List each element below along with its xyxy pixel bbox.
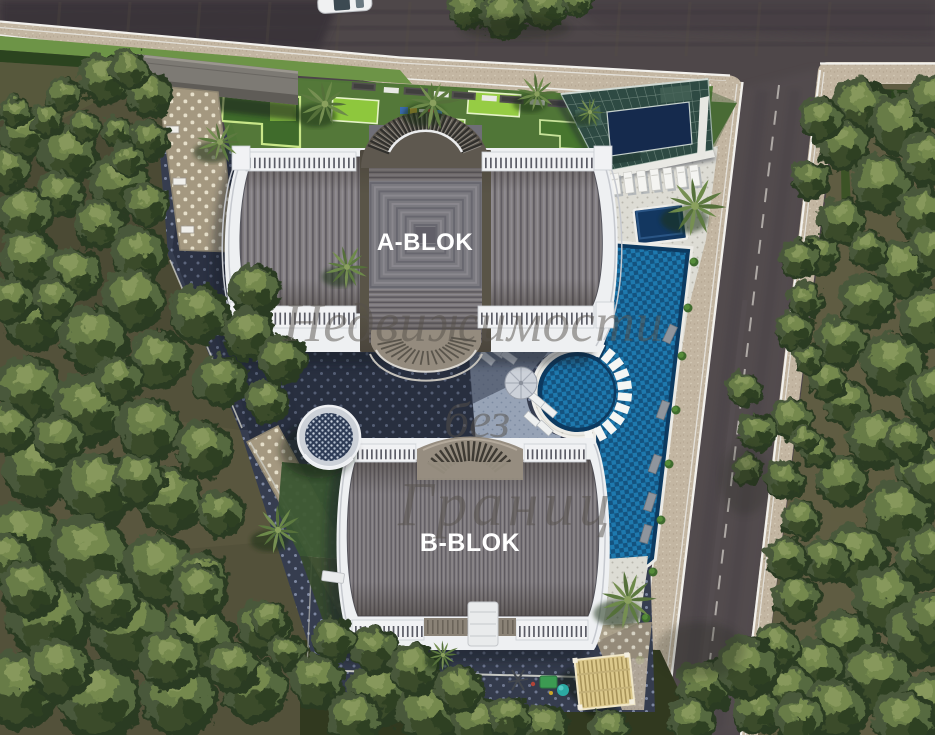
- svg-text:Недвижимости: Недвижимости: [282, 292, 663, 353]
- svg-text:B-BLOK: B-BLOK: [420, 529, 520, 557]
- svg-text:A-BLOK: A-BLOK: [377, 229, 473, 256]
- svg-text:без: без: [444, 392, 510, 448]
